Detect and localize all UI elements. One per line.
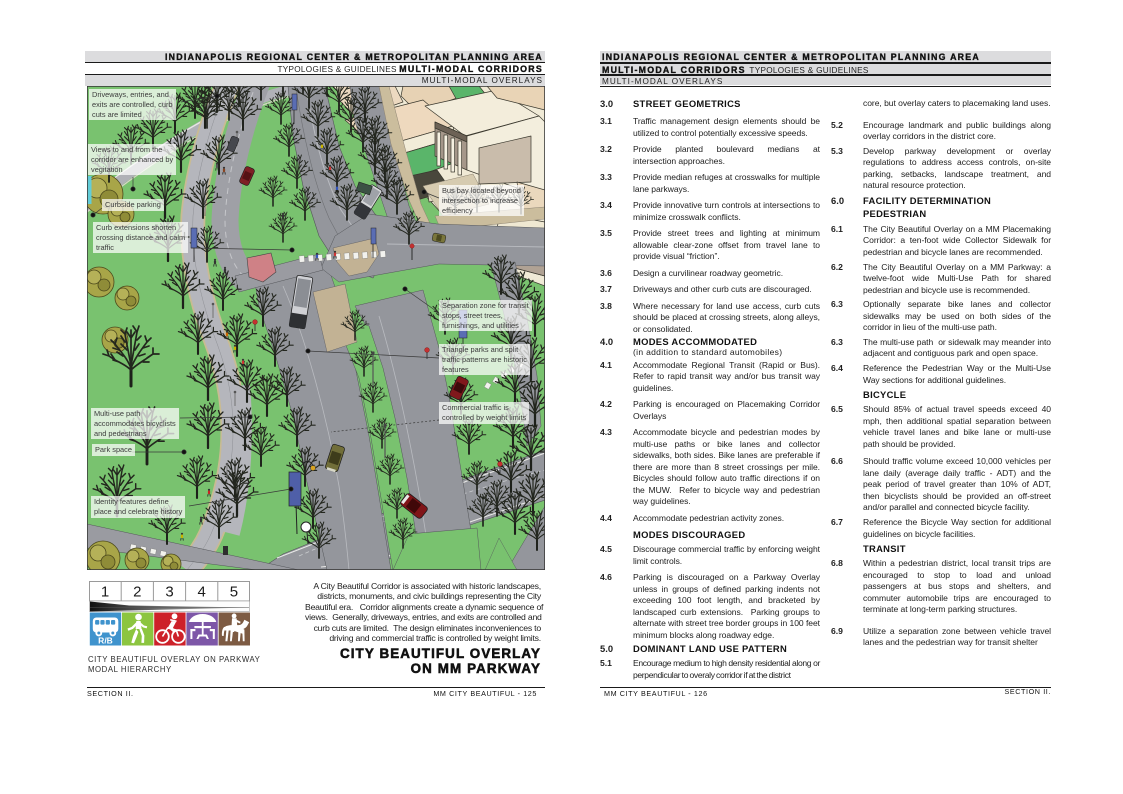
svg-text:4: 4 [198,584,206,601]
svg-text:5: 5 [230,584,238,601]
svg-text:2: 2 [133,584,141,601]
svg-text:3: 3 [165,584,173,601]
svg-text:R/B: R/B [98,636,113,646]
svg-text:1: 1 [101,584,109,601]
